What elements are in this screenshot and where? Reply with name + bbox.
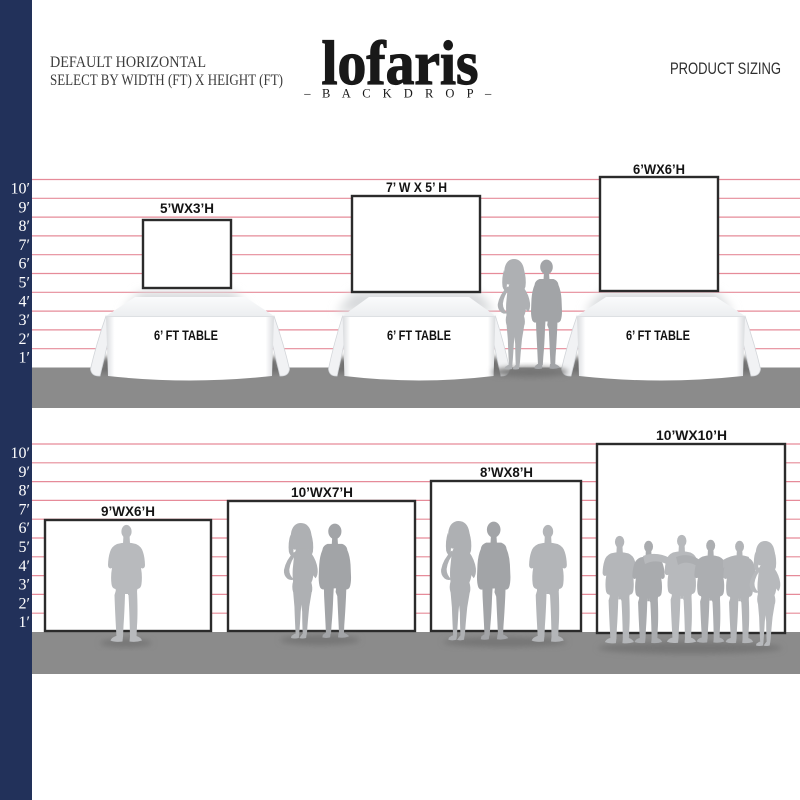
svg-text:7′: 7′	[19, 237, 31, 254]
svg-text:6’ FT TABLE: 6’ FT TABLE	[626, 328, 690, 343]
svg-text:8’WX8’H: 8’WX8’H	[480, 464, 533, 480]
svg-text:SELECT BY WIDTH (FT) X HEIGHT: SELECT BY WIDTH (FT) X HEIGHT (FT)	[50, 72, 283, 89]
svg-text:7’ W X 5’ H: 7’ W X 5’ H	[386, 179, 447, 195]
svg-text:4′: 4′	[19, 558, 31, 575]
svg-text:6’ FT TABLE: 6’ FT TABLE	[154, 328, 218, 343]
svg-text:10’WX7’H: 10’WX7’H	[291, 484, 353, 500]
svg-text:2′: 2′	[19, 331, 31, 348]
svg-text:6′: 6′	[19, 256, 31, 273]
svg-text:7′: 7′	[19, 501, 31, 518]
svg-text:10’WX10’H: 10’WX10’H	[656, 427, 727, 443]
svg-text:9′: 9′	[19, 199, 31, 216]
svg-text:10′: 10′	[11, 445, 31, 462]
svg-text:10′: 10′	[11, 181, 31, 198]
svg-text:9′: 9′	[19, 464, 31, 481]
svg-text:3′: 3′	[19, 312, 31, 329]
svg-text:5′: 5′	[19, 539, 31, 556]
svg-text:3′: 3′	[19, 577, 31, 594]
svg-text:DEFAULT HORIZONTAL: DEFAULT HORIZONTAL	[50, 54, 206, 71]
svg-text:4′: 4′	[19, 293, 31, 310]
svg-text:1′: 1′	[19, 614, 31, 631]
svg-text:– B A C K D R O P –: – B A C K D R O P –	[303, 87, 496, 101]
svg-text:6’WX6’H: 6’WX6’H	[633, 161, 685, 177]
svg-text:9’WX6’H: 9’WX6’H	[101, 503, 155, 519]
svg-text:6′: 6′	[19, 520, 31, 537]
svg-text:1′: 1′	[19, 350, 31, 367]
svg-text:8′: 8′	[19, 218, 31, 235]
svg-text:5′: 5′	[19, 275, 31, 292]
svg-text:2′: 2′	[19, 595, 31, 612]
svg-text:8′: 8′	[19, 483, 31, 500]
svg-text:5’WX3’H: 5’WX3’H	[160, 200, 214, 216]
svg-text:PRODUCT SIZING: PRODUCT SIZING	[670, 60, 781, 78]
svg-text:6’ FT TABLE: 6’ FT TABLE	[387, 328, 451, 343]
